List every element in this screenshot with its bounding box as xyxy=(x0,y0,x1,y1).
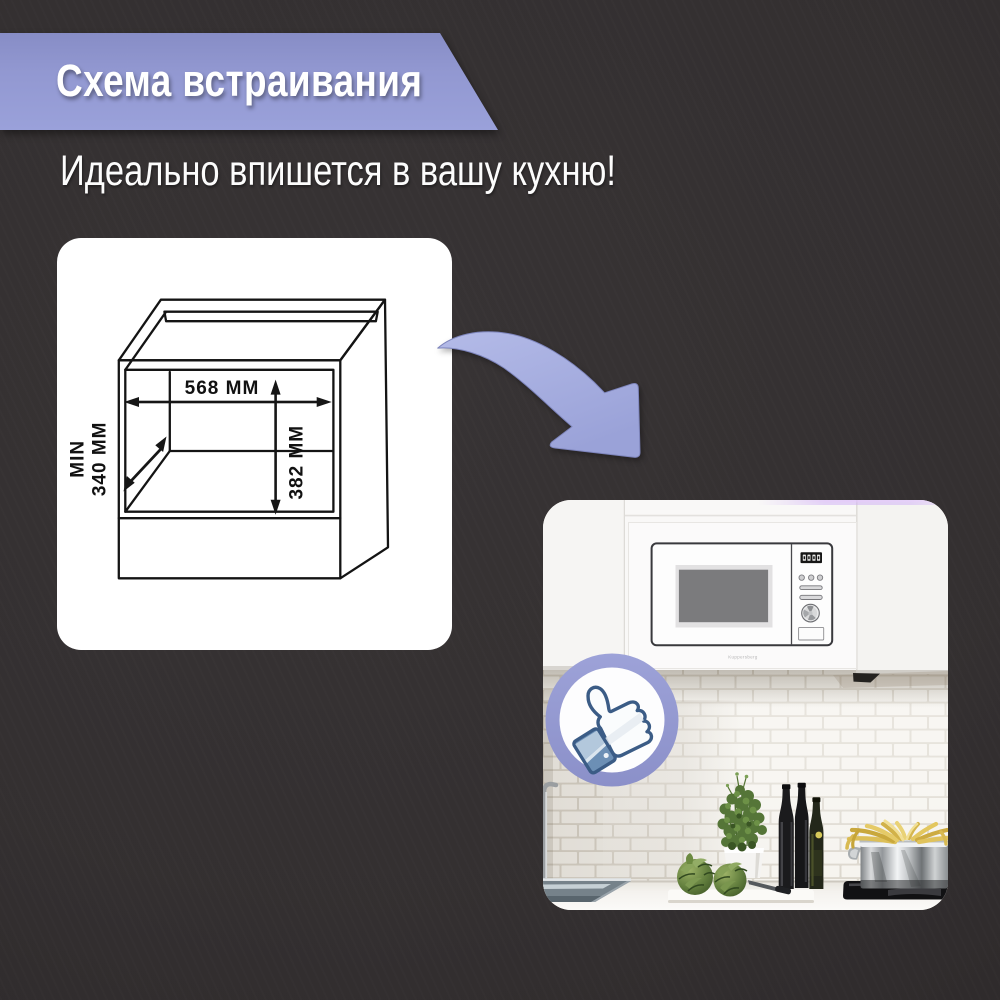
svg-text:Kuppersberg: Kuppersberg xyxy=(728,655,758,660)
svg-text:340 ММ: 340 ММ xyxy=(89,421,110,496)
svg-text:568 ММ: 568 ММ xyxy=(185,378,260,399)
svg-text:382 ММ: 382 ММ xyxy=(287,425,308,500)
svg-text:MIN: MIN xyxy=(67,440,88,478)
